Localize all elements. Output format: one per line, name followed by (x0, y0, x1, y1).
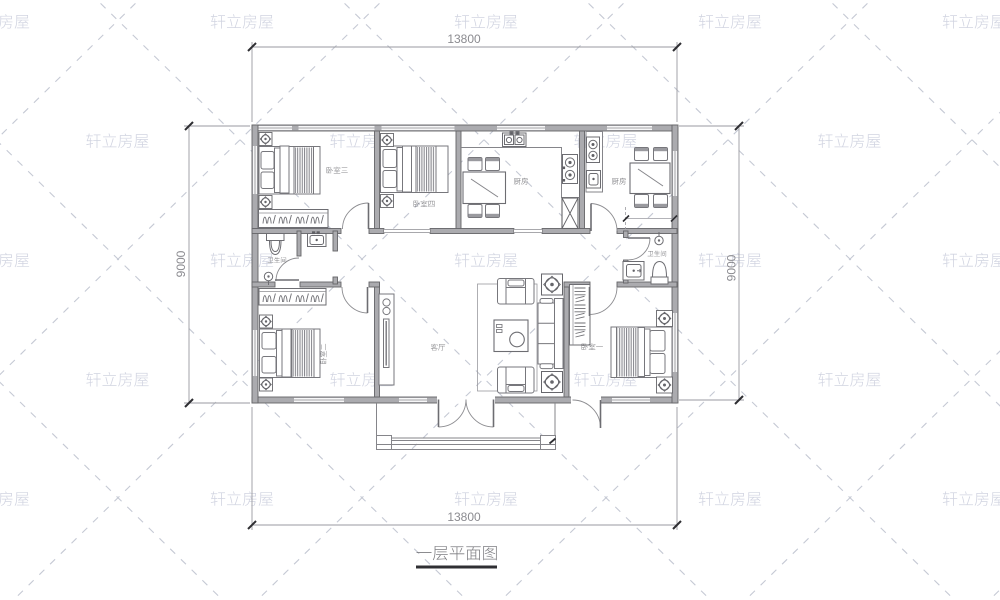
svg-text:13800: 13800 (447, 32, 481, 46)
svg-text:13800: 13800 (447, 510, 481, 524)
svg-text:9000: 9000 (725, 254, 739, 281)
svg-text:9000: 9000 (174, 250, 188, 277)
